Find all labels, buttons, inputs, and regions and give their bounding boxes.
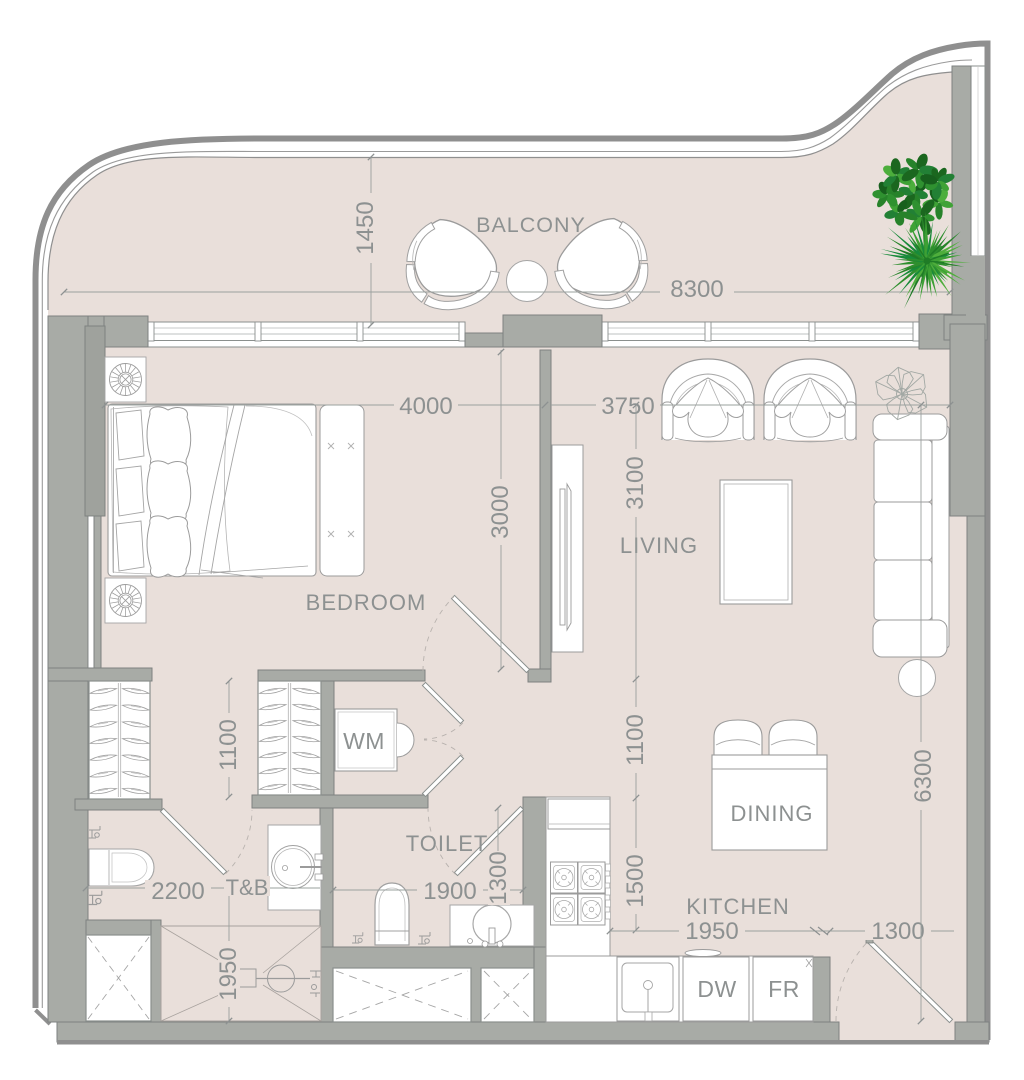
svg-text:BEDROOM: BEDROOM bbox=[306, 590, 427, 615]
svg-text:LIVING: LIVING bbox=[620, 533, 698, 558]
svg-text:1950: 1950 bbox=[215, 947, 242, 1000]
svg-text:1500: 1500 bbox=[622, 854, 649, 907]
svg-text:8300: 8300 bbox=[670, 276, 723, 303]
svg-text:FR: FR bbox=[768, 976, 800, 1002]
svg-text:1100: 1100 bbox=[215, 719, 242, 771]
svg-text:1300: 1300 bbox=[871, 918, 924, 945]
svg-text:1950: 1950 bbox=[685, 918, 738, 945]
svg-text:1300: 1300 bbox=[485, 851, 512, 904]
svg-text:WM: WM bbox=[343, 728, 385, 754]
svg-text:DINING: DINING bbox=[731, 801, 814, 826]
svg-text:TOILET: TOILET bbox=[406, 831, 489, 856]
svg-text:6300: 6300 bbox=[910, 749, 937, 802]
svg-text:1900: 1900 bbox=[423, 878, 476, 905]
svg-text:KITCHEN: KITCHEN bbox=[686, 894, 790, 919]
svg-text:1450: 1450 bbox=[352, 201, 379, 254]
svg-text:3000: 3000 bbox=[487, 485, 514, 538]
svg-text:4000: 4000 bbox=[399, 393, 452, 420]
svg-text:3100: 3100 bbox=[622, 456, 649, 509]
svg-text:3750: 3750 bbox=[601, 393, 654, 420]
svg-text:1100: 1100 bbox=[622, 714, 649, 766]
svg-text:DW: DW bbox=[697, 976, 736, 1002]
svg-text:2200: 2200 bbox=[151, 878, 204, 905]
svg-text:BALCONY: BALCONY bbox=[476, 213, 586, 237]
svg-text:T&B: T&B bbox=[226, 875, 269, 900]
